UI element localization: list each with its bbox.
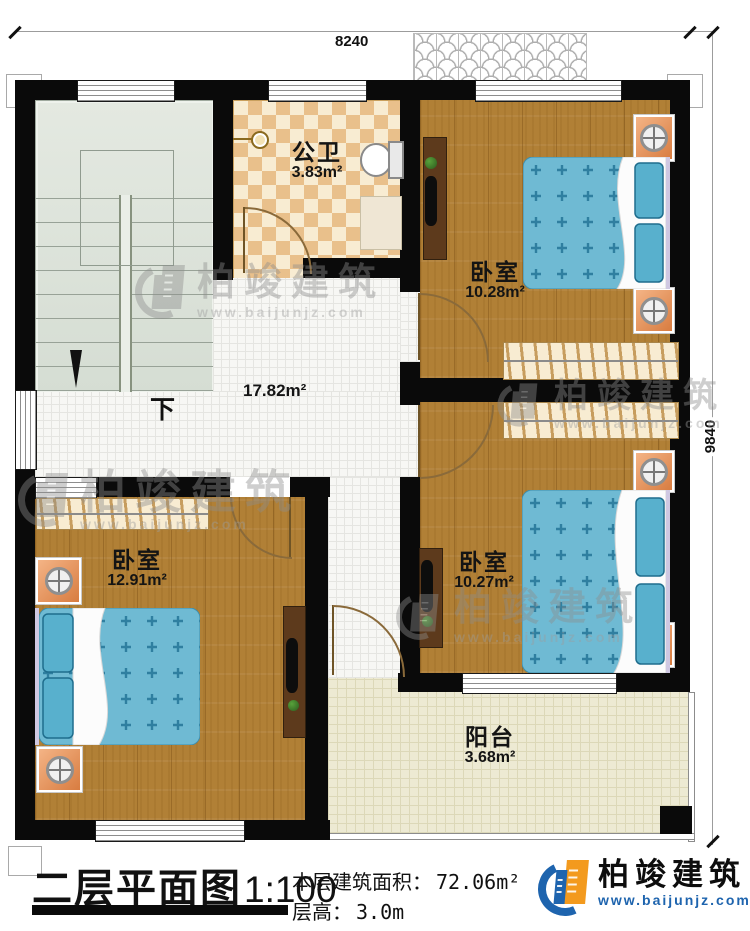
stair-direction-arrow (70, 350, 82, 388)
watermark-logo-icon (396, 592, 442, 641)
bed-bottom-left (35, 608, 200, 745)
lamp-icon (640, 297, 668, 325)
floor-height-line: 层高： 3.0m (292, 896, 404, 925)
lamp-icon (640, 124, 668, 152)
brand-logo: 柏竣建筑 www.baijunjz.com (538, 858, 750, 916)
brand-url: www.baijunjz.com (598, 892, 750, 908)
wardrobe (503, 342, 679, 380)
nightstand (634, 115, 674, 161)
wall (365, 80, 475, 100)
floor-height-value: 3.0m (356, 900, 404, 924)
dimension-line-top (15, 31, 713, 32)
balcony-railing (328, 833, 695, 840)
plant-icon (425, 157, 437, 169)
lamp-icon (46, 756, 74, 784)
balcony-corner-column (660, 806, 692, 834)
sink-counter-icon (360, 196, 402, 250)
dimension-tick (706, 835, 719, 848)
window (77, 80, 175, 102)
room-label-bedroom-tr: 卧室 10.28m² (439, 260, 551, 303)
watermark: 柏竣建筑 www.baijunjz.com (135, 263, 385, 321)
dimension-tick (706, 26, 719, 39)
wall (615, 673, 690, 692)
dimension-tick (683, 26, 696, 39)
nightstand (36, 558, 81, 604)
nightstand (37, 747, 82, 792)
wall (15, 820, 95, 840)
wall (305, 477, 328, 840)
floor-area-line: 本层建筑面积： 72.06m² (292, 866, 520, 895)
watermark: 柏竣建筑 www.baijunjz.com (492, 376, 726, 434)
brand-name: 柏竣建筑 (598, 858, 750, 892)
computer-monitor-icon (286, 638, 298, 693)
window (268, 80, 367, 102)
floor-plan: 8240 9840 (0, 0, 750, 931)
wall (398, 673, 462, 692)
hall-floor (35, 392, 400, 477)
wall (213, 95, 233, 280)
floor-height-label: 层高： (292, 896, 352, 925)
toilet-tank-icon (388, 141, 404, 179)
floor-area-label: 本层建筑面积： (292, 866, 432, 895)
nightstand (634, 451, 674, 492)
lamp-icon (640, 458, 668, 486)
wall (400, 362, 420, 405)
window (15, 390, 37, 470)
wall (243, 820, 330, 840)
watermark-logo-icon (18, 471, 72, 529)
wall (400, 95, 420, 292)
hall-area-label: 17.82m² (243, 381, 306, 401)
brand-logo-icon (538, 858, 590, 916)
door-threshold (400, 292, 420, 362)
window (475, 80, 622, 102)
lamp-icon (45, 567, 73, 595)
computer-monitor-icon (425, 176, 437, 226)
stairwell-outline (80, 150, 174, 266)
door-threshold (400, 405, 420, 477)
wall (15, 95, 35, 392)
watermark: 柏竣建筑 www.baijunjz.com (18, 468, 300, 532)
room-label-bathroom: 公卫 3.83m² (261, 140, 373, 183)
title-underline (32, 905, 288, 915)
watermark-logo-icon (497, 382, 540, 428)
watermark-logo-icon (135, 263, 189, 321)
room-label-bedroom-bl: 卧室 12.91m² (81, 548, 193, 591)
window (462, 673, 617, 694)
watermark: 柏竣建筑 www.baijunjz.com (392, 588, 642, 646)
floor-area-value: 72.06m² (436, 870, 520, 894)
nightstand (634, 288, 674, 333)
room-label-balcony: 阳台 3.68m² (434, 725, 546, 768)
plant-icon (288, 700, 299, 711)
window (95, 820, 245, 842)
stairs-down-label: 下 (150, 390, 175, 426)
dimension-tick (8, 26, 21, 39)
roof-tile-decoration (413, 33, 587, 85)
dimension-top-value: 8240 (332, 33, 371, 50)
